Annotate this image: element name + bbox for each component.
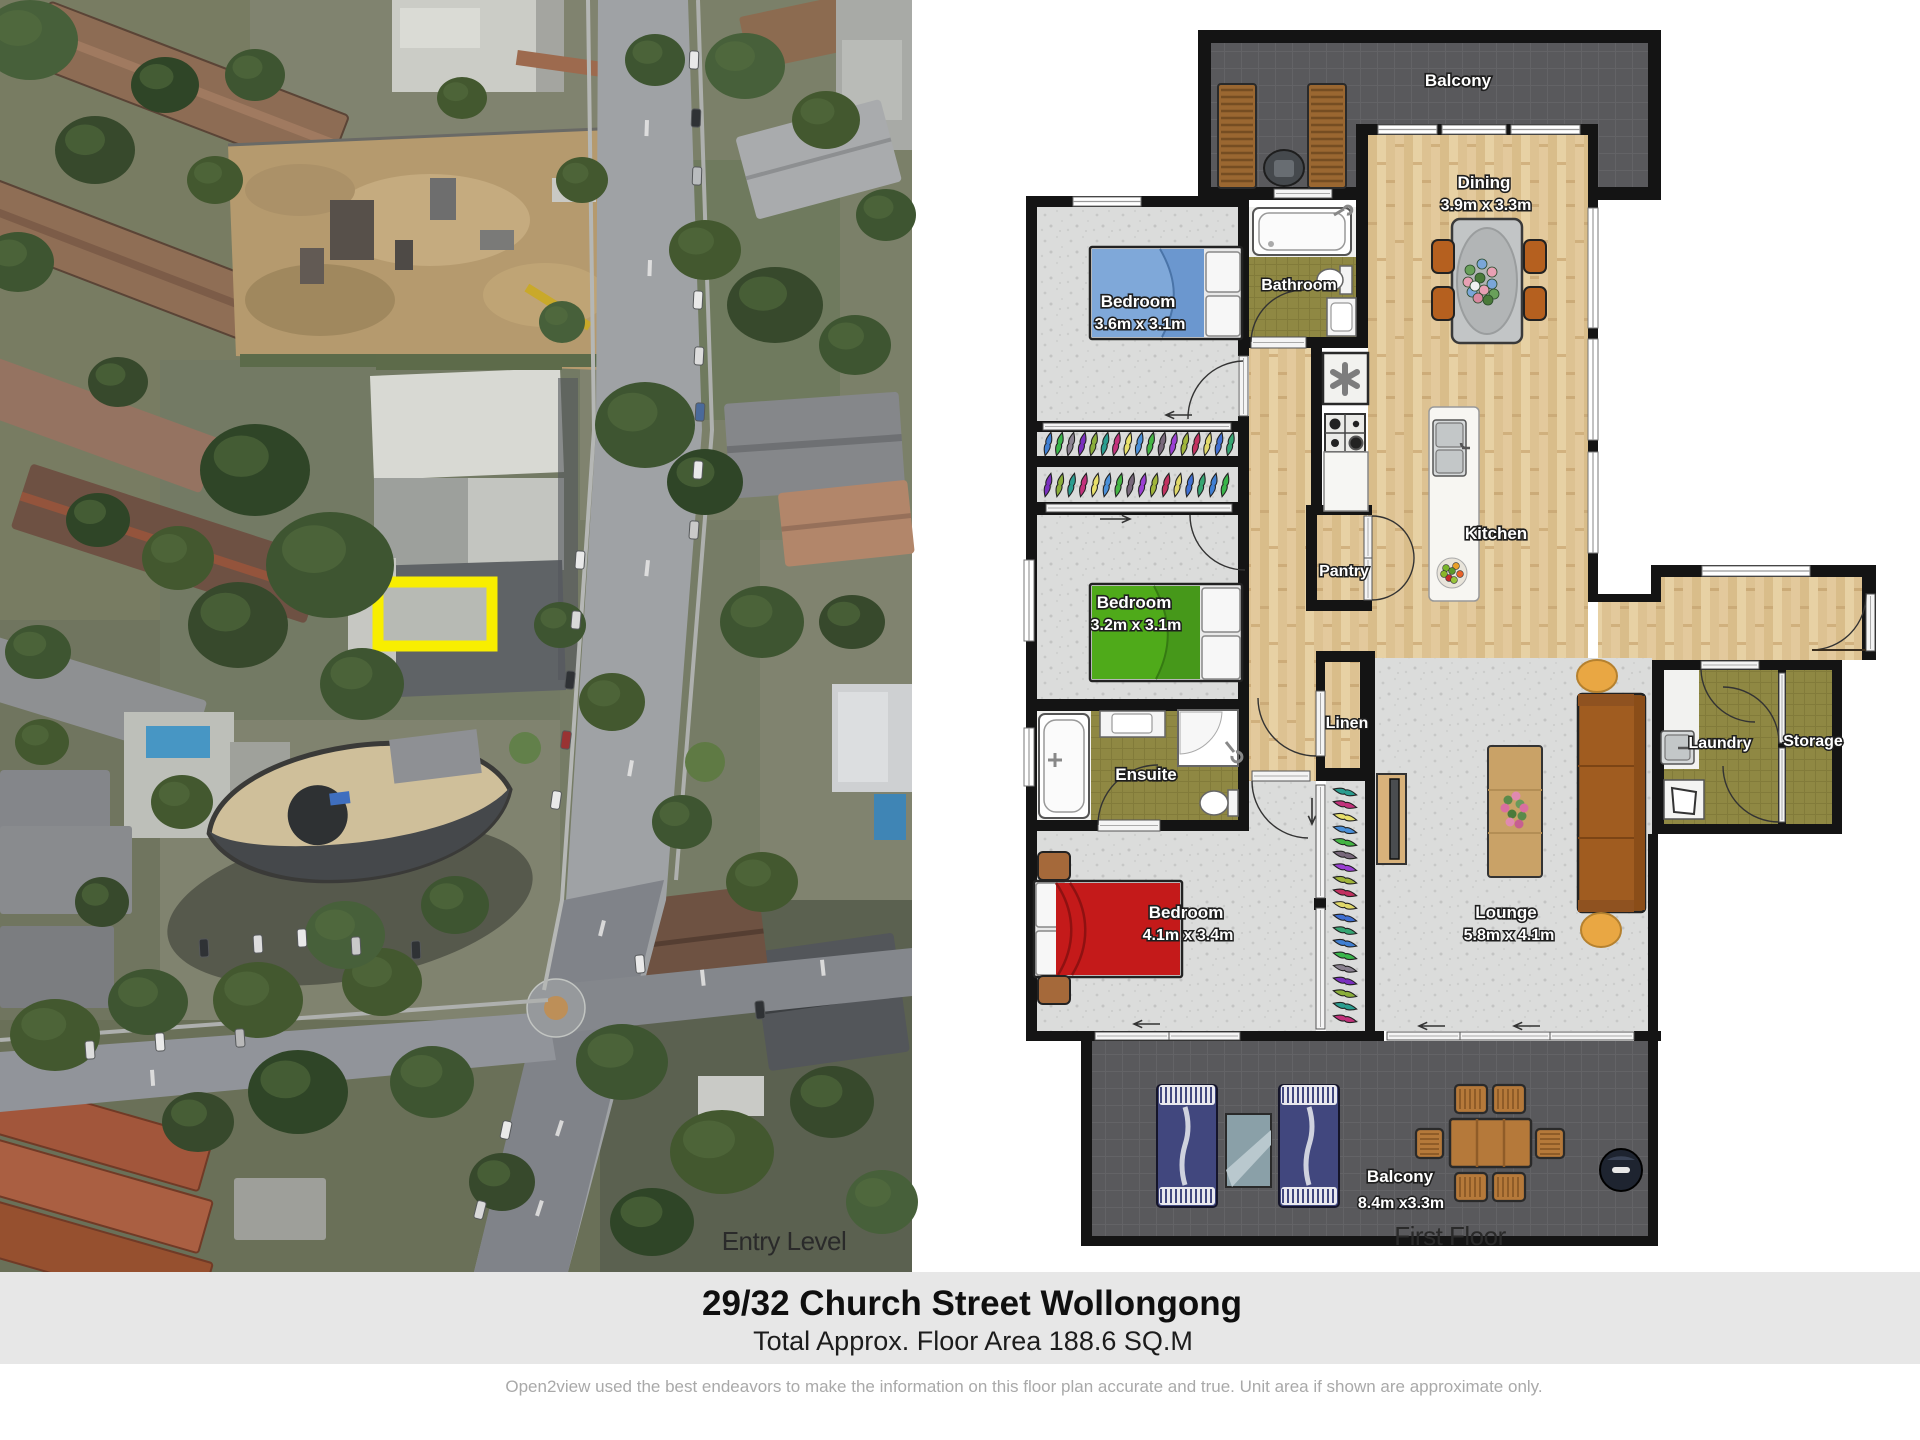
svg-text:Open2view used the best endeav: Open2view used the best endeavors to mak…	[505, 1377, 1542, 1396]
svg-text:8.4m x3.3m: 8.4m x3.3m	[1358, 1195, 1444, 1212]
svg-text:Balcony: Balcony	[1367, 1167, 1434, 1186]
svg-text:3.6m x 3.1m: 3.6m x 3.1m	[1095, 316, 1186, 333]
svg-text:Pantry: Pantry	[1319, 563, 1369, 580]
svg-text:Storage: Storage	[1783, 733, 1843, 750]
svg-text:4.1m x 3.4m: 4.1m x 3.4m	[1143, 927, 1234, 944]
svg-text:Laundry: Laundry	[1688, 735, 1751, 752]
svg-text:Total Approx. Floor Area 188.6: Total Approx. Floor Area 188.6 SQ.M	[753, 1326, 1193, 1356]
svg-text:Kitchen: Kitchen	[1465, 524, 1527, 543]
svg-text:Bedroom: Bedroom	[1097, 593, 1172, 612]
svg-text:Bedroom: Bedroom	[1101, 292, 1176, 311]
svg-text:29/32 Church Street Wollongong: 29/32 Church Street Wollongong	[702, 1284, 1242, 1323]
svg-text:Lounge: Lounge	[1475, 903, 1536, 922]
svg-text:Bedroom: Bedroom	[1149, 903, 1224, 922]
svg-text:Balcony: Balcony	[1425, 71, 1492, 90]
svg-text:3.2m x 3.1m: 3.2m x 3.1m	[1091, 617, 1182, 634]
svg-text:5.8m x 4.1m: 5.8m x 4.1m	[1464, 927, 1555, 944]
svg-text:First Floor: First Floor	[1394, 1221, 1506, 1251]
svg-text:Bathroom: Bathroom	[1261, 277, 1337, 294]
svg-text:Dining: Dining	[1458, 173, 1511, 192]
svg-text:Entry Level: Entry Level	[722, 1226, 847, 1256]
svg-text:3.9m x 3.3m: 3.9m x 3.3m	[1441, 197, 1532, 214]
svg-text:Linen: Linen	[1326, 715, 1369, 732]
svg-text:Ensuite: Ensuite	[1115, 765, 1176, 784]
